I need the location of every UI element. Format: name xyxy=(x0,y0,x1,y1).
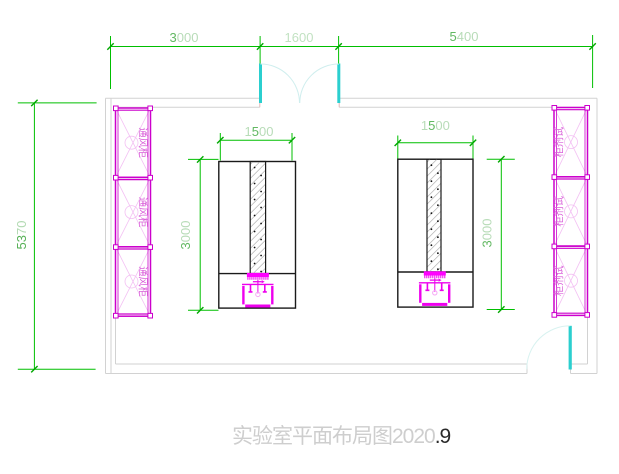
svg-text:通风柜: 通风柜 xyxy=(137,127,150,158)
svg-text:实验室平面布局图2020.9: 实验室平面布局图2020.9 xyxy=(232,425,451,448)
svg-text:通风柜: 通风柜 xyxy=(137,197,150,228)
svg-text:3000: 3000 xyxy=(178,221,193,250)
svg-text:1500: 1500 xyxy=(421,118,450,133)
svg-text:1600: 1600 xyxy=(285,30,314,45)
svg-text:柜剂试: 柜剂试 xyxy=(553,196,566,227)
svg-text:通风柜: 通风柜 xyxy=(137,266,150,297)
svg-text:柜剂试: 柜剂试 xyxy=(553,127,566,158)
svg-text:5400: 5400 xyxy=(450,29,479,44)
svg-text:3000: 3000 xyxy=(170,30,199,45)
svg-text:柜剂试: 柜剂试 xyxy=(553,265,566,296)
svg-text:5370: 5370 xyxy=(14,221,29,250)
svg-text:1500: 1500 xyxy=(245,124,274,139)
svg-text:3000: 3000 xyxy=(480,219,495,248)
